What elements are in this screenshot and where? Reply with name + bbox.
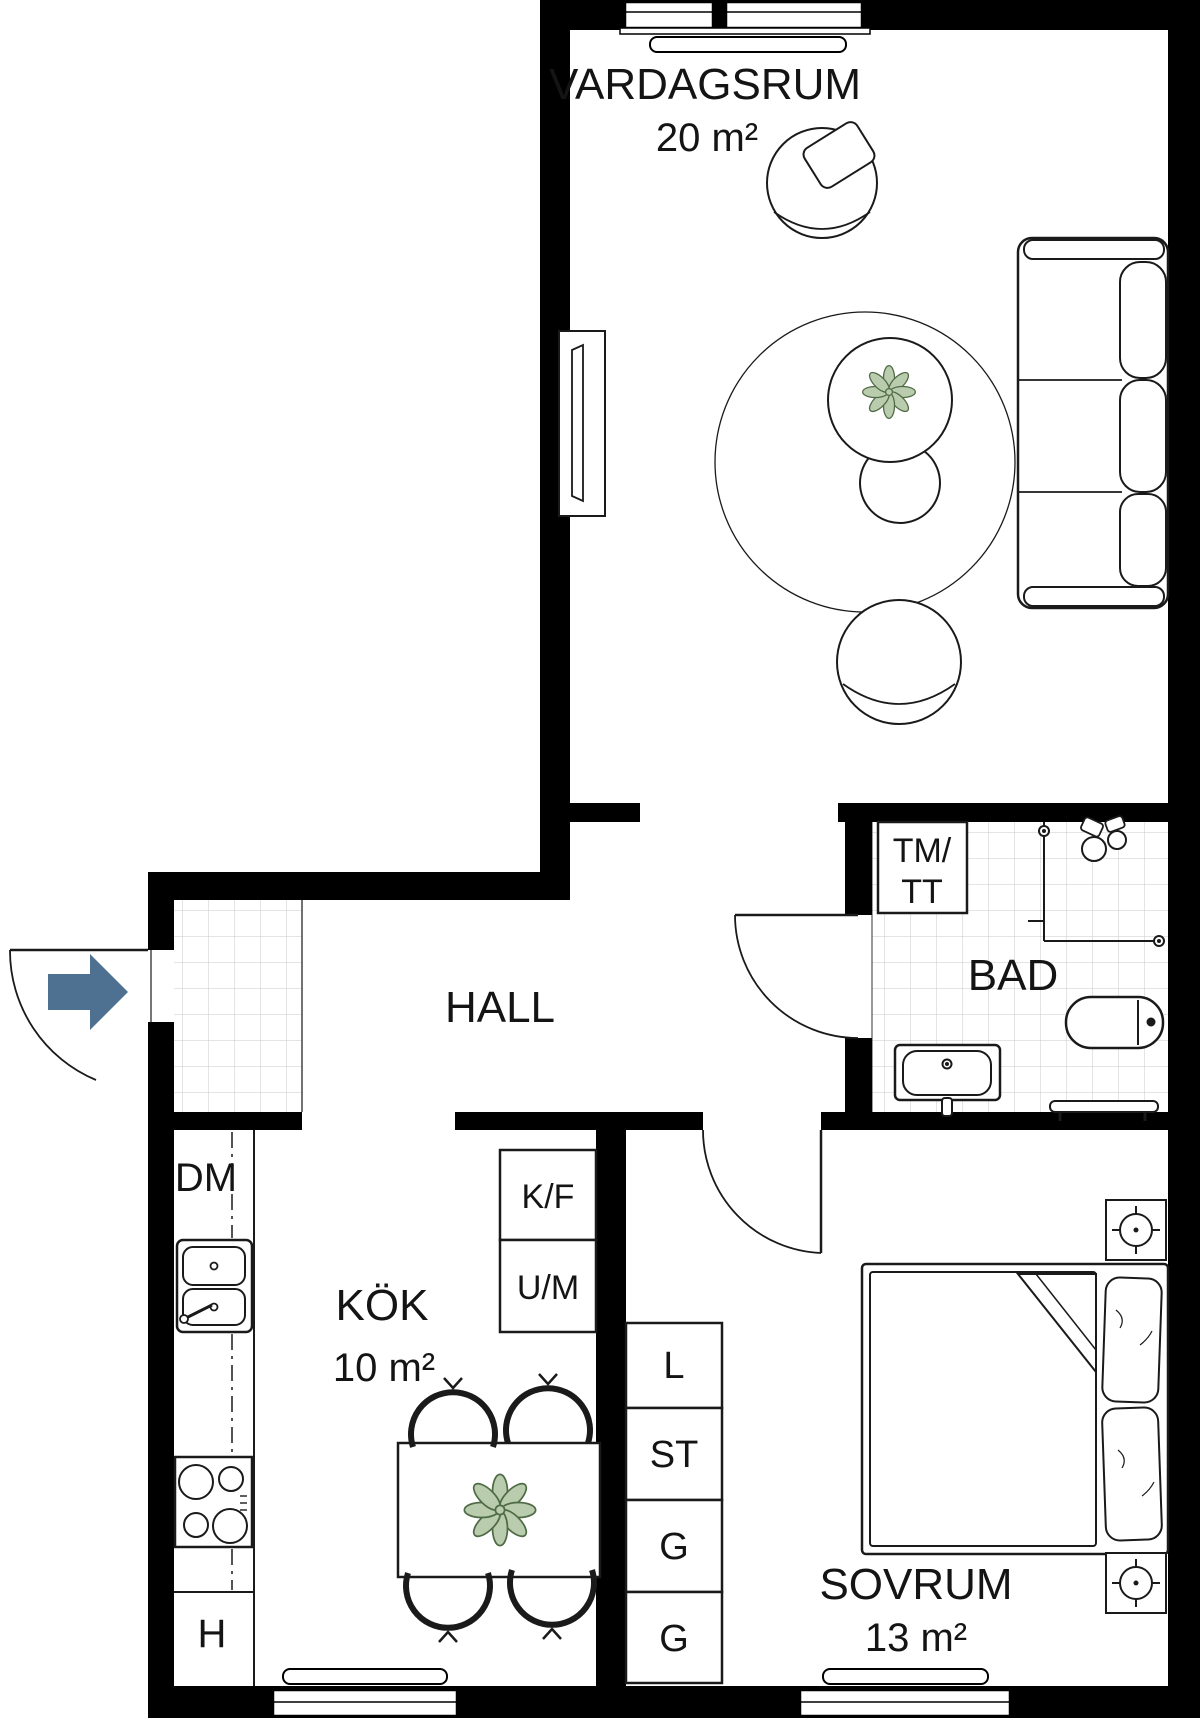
- label-oven-microwave: U/M: [517, 1269, 579, 1307]
- kitchen-window: [273, 1690, 457, 1716]
- label-closet-l: L: [663, 1345, 684, 1387]
- livingroom-window-right: [726, 2, 862, 28]
- shower-head-dot-1: [1043, 830, 1046, 833]
- label-washer-dryer-line2: TT: [901, 873, 943, 911]
- chair-bottom-left-notch: [439, 1632, 457, 1642]
- chair-top-left-notch: [444, 1378, 462, 1388]
- label-fridge-freezer: K/F: [522, 1178, 575, 1216]
- ceiling-lamp-symbol-2: [1106, 1553, 1166, 1613]
- sofa-back-cushion-2: [1120, 380, 1166, 492]
- doors: [10, 915, 858, 1253]
- wall-right: [1168, 0, 1200, 1718]
- chair-bottom-left: [406, 1573, 490, 1628]
- pouf: [837, 600, 961, 724]
- shower-head-dot-2: [1158, 940, 1161, 943]
- wall-left-above-door: [148, 900, 174, 950]
- bedroom-window: [800, 1690, 1010, 1716]
- floorplan-svg: VARDAGSRUM 20 m² HALL BAD TM/ TT KÖK 10 …: [0, 0, 1200, 1718]
- bathroom-door-swing-arc: [735, 915, 858, 1038]
- sofa-armrest-top: [1024, 240, 1164, 259]
- chair-bottom-right-notch: [543, 1629, 561, 1639]
- livingroom-furniture: [559, 119, 1168, 724]
- label-kok-area: 10 m²: [333, 1346, 435, 1390]
- label-hatch: H: [198, 1612, 227, 1656]
- chair-top-right-notch: [539, 1374, 557, 1384]
- bed-pillow-2: [1102, 1407, 1163, 1541]
- tv-icon: [572, 345, 583, 501]
- entry-tile-mat: [174, 900, 302, 1112]
- wall-bathroom-left-upper: [845, 822, 872, 915]
- livingroom-radiator: [650, 37, 846, 52]
- bed: [862, 1264, 1168, 1554]
- kitchen-radiator: [283, 1669, 447, 1684]
- label-hall: HALL: [445, 983, 555, 1032]
- livingroom-window-sill: [620, 28, 870, 34]
- wall-left-below-door: [148, 1022, 174, 1686]
- chair-top-left: [411, 1392, 495, 1447]
- wall-hall-top: [148, 872, 570, 900]
- sofa-armrest-bottom: [1024, 587, 1164, 606]
- label-washer-dryer-line1: TM/: [893, 832, 952, 870]
- wall-kitchen-bedroom-divider: [596, 1130, 626, 1686]
- label-sovrum-area: 13 m²: [865, 1616, 967, 1660]
- ceiling-lamp-symbol-1: [1106, 1200, 1166, 1260]
- sofa: [1018, 238, 1168, 608]
- label-closet-g1: G: [659, 1526, 689, 1568]
- label-dishwasher: DM: [175, 1156, 237, 1200]
- plant-kitchen: [464, 1474, 535, 1545]
- toilet: [1066, 997, 1163, 1048]
- stove: [175, 1457, 252, 1547]
- wall-hall-kitchen-right: [455, 1112, 703, 1130]
- wall-hall-kitchen-left: [174, 1112, 302, 1130]
- wall-bathroom-bottom: [821, 1112, 1168, 1130]
- plant-livingroom: [863, 366, 916, 419]
- bedroom-radiator: [823, 1669, 988, 1684]
- label-vardagsrum: VARDAGSRUM: [549, 60, 861, 109]
- entry-arrow-icon: [48, 954, 128, 1030]
- floorplan-page: VARDAGSRUM 20 m² HALL BAD TM/ TT KÖK 10 …: [0, 0, 1200, 1718]
- label-sovrum: SOVRUM: [819, 1560, 1012, 1609]
- livingroom-window-left: [625, 2, 713, 28]
- label-vardagsrum-area: 20 m²: [656, 116, 758, 160]
- label-bad: BAD: [968, 951, 1058, 1000]
- entry-door-swing-arc: [10, 950, 96, 1080]
- sofa-back-cushion-1: [1120, 262, 1166, 378]
- chair-top-right: [506, 1388, 590, 1443]
- wall-livingroom-bottom-stub: [570, 803, 640, 822]
- label-kok: KÖK: [336, 1281, 429, 1330]
- bed-pillow-1: [1102, 1277, 1162, 1403]
- bedroom-furniture: [626, 1200, 1168, 1683]
- kitchen-sink: [177, 1240, 252, 1332]
- label-closet-g2: G: [659, 1618, 689, 1660]
- sofa-back-cushion-3: [1120, 494, 1166, 586]
- label-closet-st: ST: [650, 1434, 699, 1476]
- bedroom-door-swing-arc: [703, 1130, 821, 1253]
